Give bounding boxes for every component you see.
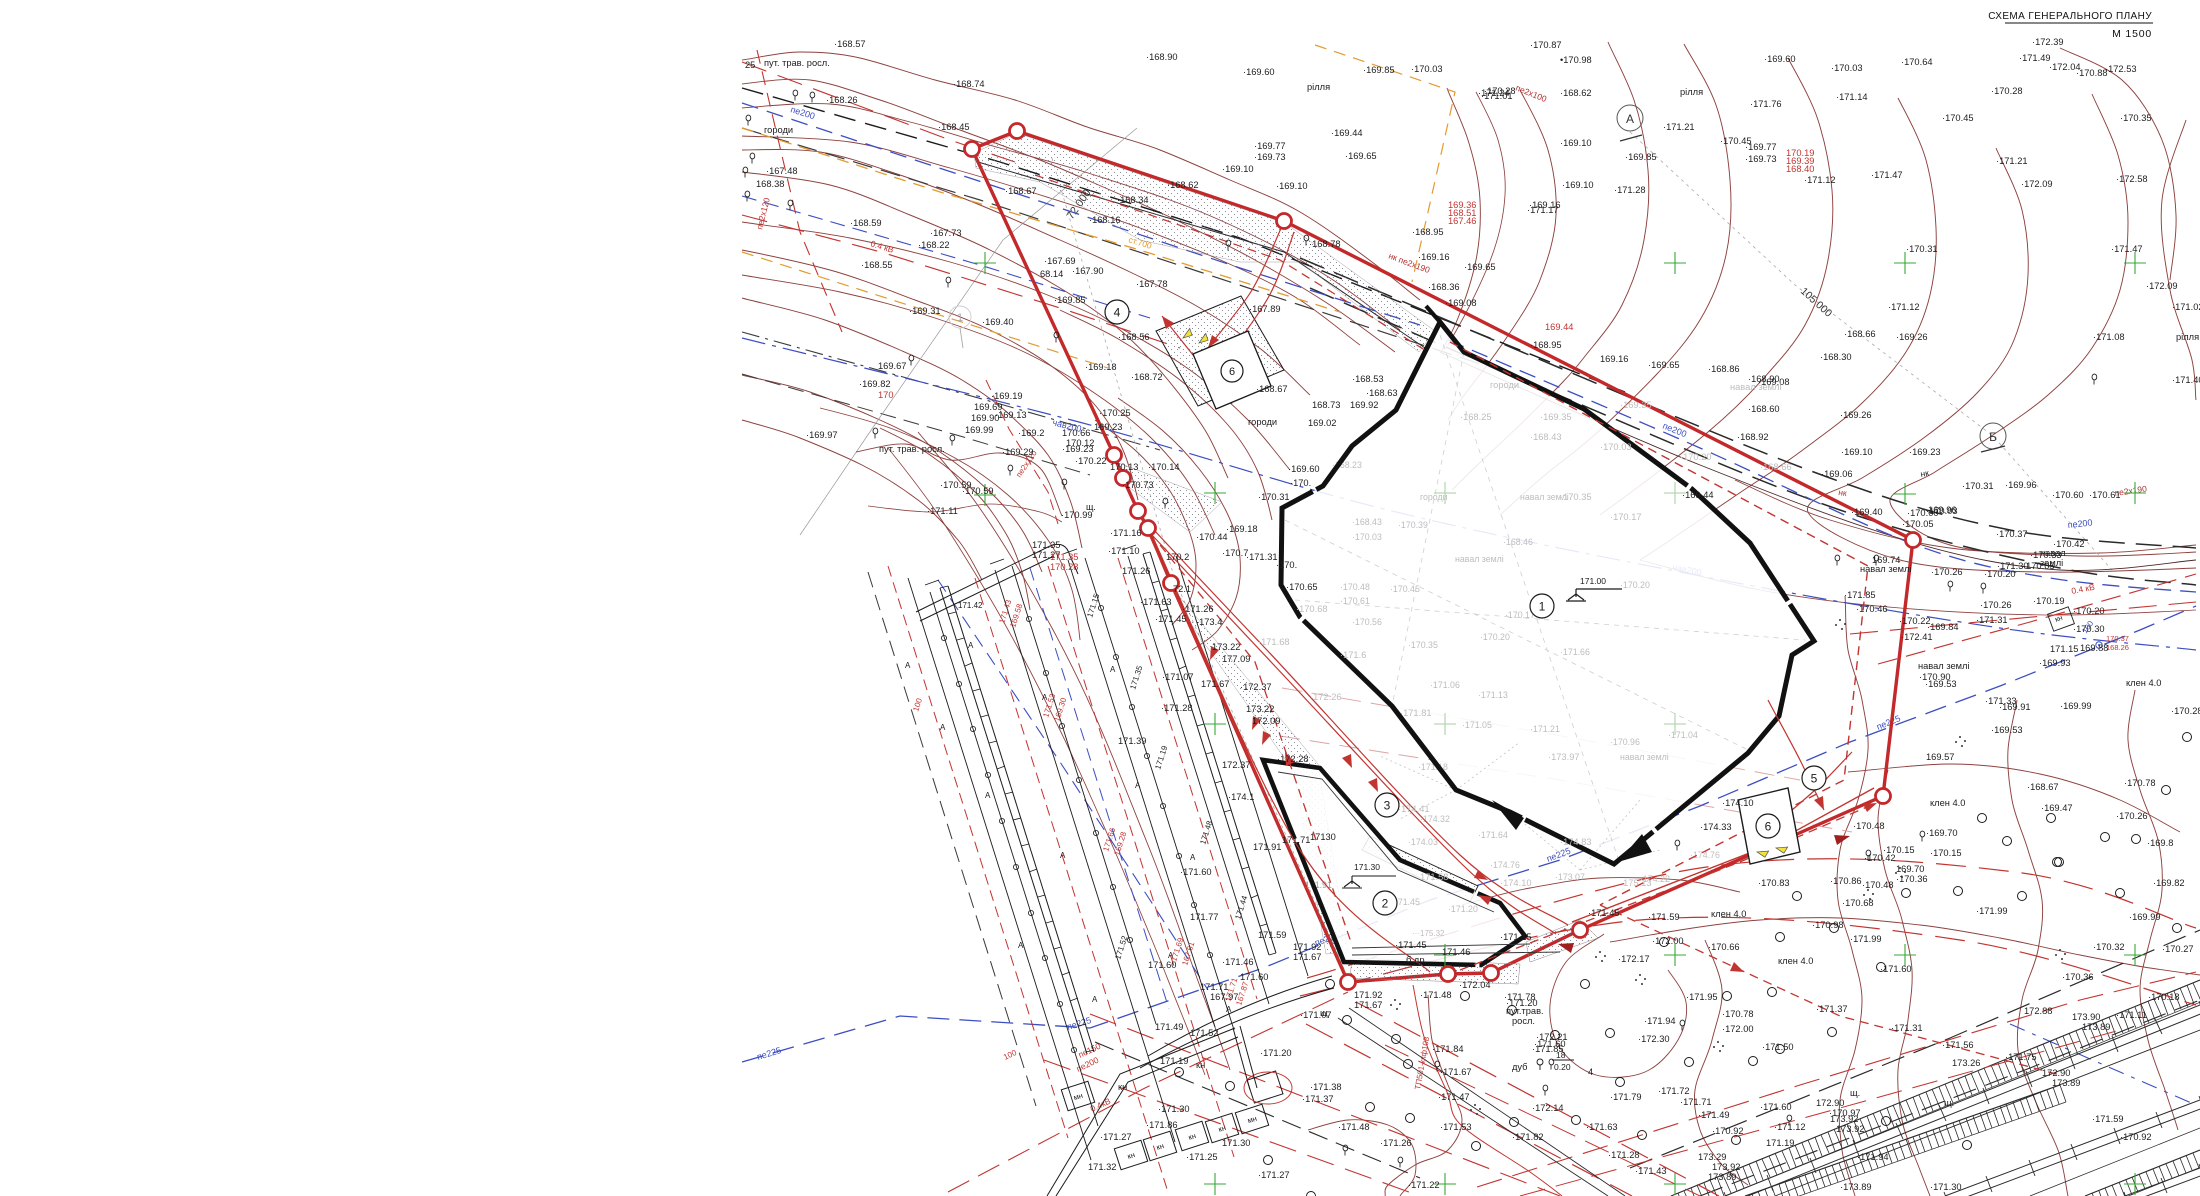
- svg-text:кн: кн: [1196, 1060, 1205, 1070]
- svg-text:·169.10: ·169.10: [1841, 447, 1873, 457]
- svg-text:·171.48: ·171.48: [1420, 990, 1452, 1000]
- svg-text:А: А: [1190, 853, 1196, 862]
- svg-text:СХЕМА ГЕНЕРАЛЬНОГО ПЛАНУ: СХЕМА ГЕНЕРАЛЬНОГО ПЛАНУ: [1988, 11, 2152, 22]
- svg-text:·170.31: ·170.31: [1962, 481, 1994, 491]
- svg-text:·170.83: ·170.83: [1758, 878, 1790, 888]
- svg-text:б.др.: б.др.: [1406, 955, 1427, 965]
- svg-text:клен 4.0: клен 4.0: [2126, 678, 2161, 688]
- svg-text:·168.72: ·168.72: [1131, 372, 1163, 382]
- svg-text:172.90: 172.90: [2042, 1068, 2070, 1078]
- svg-text:4: 4: [1114, 305, 1121, 319]
- svg-text:171.92: 171.92: [1354, 990, 1382, 1000]
- svg-text:·171.76: ·171.76: [1750, 99, 1782, 109]
- svg-text:3: 3: [1384, 798, 1391, 812]
- svg-text:·171.21: ·171.21: [1663, 122, 1695, 132]
- svg-text:·168.34: ·168.34: [1117, 195, 1149, 205]
- svg-text:·169.06: ·169.06: [1821, 469, 1853, 479]
- svg-text:·169.65: ·169.65: [1648, 360, 1680, 370]
- svg-text:171.35: 171.35: [1050, 552, 1078, 562]
- svg-text:·172.41: ·172.41: [1901, 632, 1933, 642]
- svg-text:·170.31: ·170.31: [1906, 244, 1938, 254]
- svg-text:клен 4.0: клен 4.0: [1778, 956, 1813, 966]
- svg-text:173.92: 173.92: [1712, 1162, 1740, 1172]
- svg-text:·171.30: ·171.30: [1930, 1182, 1962, 1192]
- svg-text:·171.12: ·171.12: [1804, 175, 1836, 185]
- svg-text:·169.2: ·169.2: [1018, 428, 1044, 438]
- svg-text:·171.67: ·171.67: [1440, 1067, 1472, 1077]
- svg-text:·171.30: ·171.30: [1158, 1104, 1190, 1114]
- svg-text:·171.63: ·171.63: [1586, 1122, 1618, 1132]
- svg-text:•170.98: •170.98: [1560, 55, 1592, 65]
- svg-text:·170.35: ·170.35: [1560, 492, 1592, 502]
- svg-text:4: 4: [1588, 1067, 1593, 1077]
- svg-text:·170.92: ·170.92: [1712, 1126, 1744, 1136]
- svg-text:171.58: 171.58: [1420, 872, 1448, 882]
- svg-text:·171.28: ·171.28: [1614, 185, 1646, 195]
- svg-text:171.67: 171.67: [1201, 679, 1229, 689]
- svg-text:·168.60: ·168.60: [1748, 404, 1780, 414]
- svg-text:68.14: 68.14: [1040, 269, 1063, 279]
- svg-text:·167.78: ·167.78: [1136, 279, 1168, 289]
- svg-text:·170.96: ·170.96: [1610, 737, 1640, 747]
- svg-text:·171.47: ·171.47: [1438, 1092, 1470, 1102]
- svg-text:навал землі: навал землі: [1860, 564, 1912, 574]
- svg-text:·170.22: ·170.22: [1075, 456, 1107, 466]
- svg-text:0.20: 0.20: [1554, 1062, 1571, 1072]
- svg-text:·168.67: ·168.67: [2027, 782, 2059, 792]
- svg-text:·169.85: ·169.85: [1625, 152, 1657, 162]
- svg-text:·171.14: ·171.14: [1836, 92, 1868, 102]
- svg-text:·171.84: ·171.84: [1432, 1044, 1464, 1054]
- svg-text:·169.65: ·169.65: [1345, 151, 1377, 161]
- svg-text:·171.99: ·171.99: [1850, 934, 1882, 944]
- svg-text:·171.53: ·171.53: [1440, 1122, 1472, 1132]
- svg-text:·170.14: ·170.14: [1148, 462, 1180, 472]
- svg-text:А: А: [1092, 995, 1098, 1004]
- svg-text:городи: городи: [1490, 380, 1519, 390]
- svg-text:·171.22: ·171.22: [1408, 1180, 1440, 1190]
- svg-text:·168.43: ·168.43: [1530, 432, 1562, 442]
- svg-text:·169.10: ·169.10: [1560, 138, 1592, 148]
- svg-text:·170.60: ·170.60: [2052, 490, 2084, 500]
- svg-text:·170.05: ·170.05: [1902, 519, 1934, 529]
- svg-text:·168.25: ·168.25: [1460, 412, 1492, 422]
- svg-text:·170.32: ·170.32: [2093, 942, 2125, 952]
- svg-text:·169.18: ·169.18: [1226, 524, 1258, 534]
- svg-text:·172.09: ·172.09: [2146, 281, 2178, 291]
- svg-text:·168.46: ·168.46: [1503, 537, 1533, 547]
- svg-text:169.44: 169.44: [1545, 322, 1573, 332]
- svg-text:·170.17: ·170.17: [1610, 512, 1642, 522]
- svg-text:·169.19: ·169.19: [991, 391, 1023, 401]
- svg-text:172.09: 172.09: [1252, 716, 1280, 726]
- svg-text:171.60: 171.60: [1240, 972, 1268, 982]
- svg-text:·171.27: ·171.27: [1100, 1132, 1132, 1142]
- svg-text:·168.86: ·168.86: [1708, 364, 1740, 374]
- svg-text:·169.10: ·169.10: [1222, 164, 1254, 174]
- svg-text:·170.66: ·170.66: [1708, 942, 1740, 952]
- svg-text:·169.53: ·169.53: [1991, 725, 2023, 735]
- svg-text:·169.97: ·169.97: [806, 430, 838, 440]
- svg-text:25: 25: [745, 60, 755, 70]
- svg-text:·168.30: ·168.30: [1820, 352, 1852, 362]
- svg-text:·171.49: ·171.49: [2019, 53, 2051, 63]
- svg-text:171.60: 171.60: [1148, 960, 1176, 970]
- svg-text:·171.17: ·171.17: [1527, 205, 1559, 215]
- svg-text:·168.55: ·168.55: [861, 260, 893, 270]
- svg-text:·168.53: ·168.53: [1352, 374, 1384, 384]
- svg-text:·171.31: ·171.31: [1246, 552, 1278, 562]
- svg-text:·170.39: ·170.39: [1398, 520, 1428, 530]
- svg-text:·172.39: ·172.39: [2032, 37, 2064, 47]
- svg-text:·168.62: ·168.62: [1167, 180, 1199, 190]
- svg-text:169.67: 169.67: [878, 361, 906, 371]
- svg-text:клен 4.0: клен 4.0: [1930, 798, 1965, 808]
- svg-text:·170.22: ·170.22: [1899, 616, 1931, 626]
- svg-text:·171.56: ·171.56: [1942, 1040, 1974, 1050]
- svg-text:·169.13: ·169.13: [995, 410, 1027, 420]
- svg-text:·172.58: ·172.58: [2116, 174, 2148, 184]
- svg-text:·170.26: ·170.26: [1980, 600, 2012, 610]
- svg-text:пут. трав. росл.: пут. трав. росл.: [764, 58, 830, 68]
- svg-text:169.99: 169.99: [965, 425, 993, 435]
- svg-text:170.28: 170.28: [1050, 562, 1078, 572]
- svg-text:·170.45: ·170.45: [1720, 136, 1752, 146]
- svg-text:·170.87: ·170.87: [1530, 40, 1562, 50]
- svg-text:·171.94: ·171.94: [1857, 1152, 1889, 1162]
- svg-text:·173.97: ·173.97: [1548, 752, 1580, 762]
- svg-text:·168.56: ·168.56: [1118, 332, 1150, 342]
- svg-text:рілля: рілля: [1307, 82, 1330, 92]
- svg-text:·170.86: ·170.86: [1830, 876, 1862, 886]
- svg-text:·171.71: ·171.71: [1680, 1097, 1712, 1107]
- svg-text:169.23: 169.23: [1094, 422, 1122, 432]
- svg-text:·169.96: ·169.96: [2005, 480, 2037, 490]
- svg-text:·171.43: ·171.43: [1635, 1166, 1667, 1176]
- svg-text:173.89: 173.89: [1708, 1172, 1736, 1182]
- svg-text:·168.74: ·168.74: [953, 79, 985, 89]
- svg-text:·169.73: ·169.73: [1254, 152, 1286, 162]
- svg-text:173.22: 173.22: [1246, 704, 1274, 714]
- svg-text:·170.42: ·170.42: [1864, 853, 1896, 863]
- svg-text:·168.36: ·168.36: [1428, 282, 1460, 292]
- svg-text:·170.19: ·170.19: [2033, 596, 2065, 606]
- svg-text:·172.09: ·172.09: [2021, 179, 2053, 189]
- svg-text:·169.84: ·169.84: [1927, 622, 1959, 632]
- svg-text:·171.21: ·171.21: [1996, 156, 2028, 166]
- svg-text:·170.78: ·170.78: [1722, 1009, 1754, 1019]
- svg-text:·173.4: ·173.4: [1196, 617, 1222, 627]
- svg-text:·170.00: ·170.00: [1907, 508, 1939, 518]
- svg-text:170.37: 170.37: [2106, 634, 2129, 643]
- svg-text:·171.79: ·171.79: [1610, 1092, 1642, 1102]
- svg-text:·171.06: ·171.06: [1430, 680, 1460, 690]
- svg-text:·171.47: ·171.47: [1871, 170, 1903, 180]
- svg-text:167.97: 167.97: [1210, 992, 1238, 1002]
- svg-text:·170.35: ·170.35: [1408, 640, 1438, 650]
- svg-text:·172.28: ·172.28: [1277, 754, 1309, 764]
- svg-text:·170.98: ·170.98: [1812, 920, 1844, 930]
- svg-text:·171.66: ·171.66: [1560, 647, 1590, 657]
- svg-text:171.59: 171.59: [1258, 930, 1286, 940]
- svg-text:·171.49: ·171.49: [1698, 1110, 1730, 1120]
- svg-text:·169.70: ·169.70: [1926, 828, 1958, 838]
- svg-text:171.35: 171.35: [1032, 540, 1060, 550]
- svg-text:1: 1: [1539, 599, 1546, 613]
- svg-text:·171.16: ·171.16: [1110, 528, 1142, 538]
- svg-text:·171.45: ·171.45: [1395, 940, 1427, 950]
- svg-text:·169.65: ·169.65: [1464, 262, 1496, 272]
- svg-text:·171.50: ·171.50: [1762, 1042, 1794, 1052]
- svg-text:·170.36: ·170.36: [1896, 874, 1928, 884]
- svg-text:·171.10: ·171.10: [1108, 546, 1140, 556]
- svg-text:·171.31: ·171.31: [1891, 1023, 1923, 1033]
- svg-text:пут. трав. росл.: пут. трав. росл.: [879, 444, 945, 454]
- svg-text:·169.35: ·169.35: [1540, 412, 1572, 422]
- svg-text:·171.12: ·171.12: [1774, 1122, 1806, 1132]
- svg-text:·170.37: ·170.37: [1996, 529, 2028, 539]
- svg-text:·169.23: ·169.23: [1062, 444, 1094, 454]
- svg-text:173.26: 173.26: [1952, 1058, 1980, 1068]
- svg-text:·169.82: ·169.82: [2153, 878, 2185, 888]
- svg-text:навал: навал: [2040, 548, 2066, 558]
- svg-text:·170.73: ·170.73: [1122, 480, 1154, 490]
- svg-text:2: 2: [1382, 896, 1389, 910]
- svg-text:землі: землі: [2040, 558, 2063, 568]
- svg-text:·169.99: ·169.99: [2129, 912, 2161, 922]
- svg-text:·169.99: ·169.99: [2060, 701, 2092, 711]
- svg-text:·171.24: ·171.24: [1478, 88, 1510, 98]
- svg-text:·169.47: ·169.47: [2041, 803, 2073, 813]
- svg-text:·173.07: ·173.07: [1555, 872, 1585, 882]
- svg-text:·169.26: ·169.26: [1840, 410, 1872, 420]
- svg-text:·170.18: ·170.18: [2148, 992, 2180, 1002]
- svg-text:·170.26: ·170.26: [2116, 811, 2148, 821]
- svg-text:·170.78: ·170.78: [2124, 778, 2156, 788]
- svg-text:171.91: 171.91: [1253, 842, 1281, 852]
- svg-text:·168.45: ·168.45: [938, 122, 970, 132]
- svg-text:·171.99: ·171.99: [1976, 906, 2008, 916]
- svg-text:·172.37: ·172.37: [1240, 682, 1272, 692]
- svg-text:169.70: 169.70: [1896, 864, 1924, 874]
- svg-text:·168.43: ·168.43: [1352, 517, 1382, 527]
- svg-text:·171.20: ·171.20: [1506, 998, 1538, 1008]
- svg-text:·170.20: ·170.20: [1480, 632, 1510, 642]
- svg-text:·171.31: ·171.31: [1976, 615, 2008, 625]
- svg-text:·170.17: ·170.17: [1505, 610, 1535, 620]
- svg-text:дуб: дуб: [1512, 1062, 1528, 1072]
- svg-text:6: 6: [1765, 819, 1772, 833]
- svg-text:·168.22: ·168.22: [918, 240, 950, 250]
- svg-text:·170.68: ·170.68: [1842, 898, 1874, 908]
- svg-text:·171.68: ·171.68: [1258, 637, 1290, 647]
- svg-text:·169.60: ·169.60: [1243, 67, 1275, 77]
- svg-text:·169.18: ·169.18: [1085, 362, 1117, 372]
- svg-text:·169.23: ·169.23: [1909, 447, 1941, 457]
- svg-text:А: А: [1060, 851, 1066, 860]
- svg-text:·171.12: ·171.12: [1888, 302, 1920, 312]
- svg-text:·174.41: ·174.41: [1398, 804, 1430, 814]
- svg-text:·171.72: ·171.72: [1658, 1086, 1690, 1096]
- svg-text:·174.10: ·174.10: [1500, 878, 1532, 888]
- svg-text:·172.00: ·172.00: [1652, 936, 1684, 946]
- svg-text:·168.16: ·168.16: [1089, 215, 1121, 225]
- svg-text:·170.46: ·170.46: [1856, 604, 1888, 614]
- svg-text:·168.90: ·168.90: [1748, 374, 1780, 384]
- svg-text:·169.29: ·169.29: [1002, 447, 1034, 457]
- svg-text:А: А: [1135, 781, 1141, 790]
- svg-text:·171.59: ·171.59: [1648, 912, 1680, 922]
- svg-text:·167.48: ·167.48: [766, 166, 798, 176]
- svg-text:·170.35: ·170.35: [2120, 113, 2152, 123]
- svg-text:·170.20: ·170.20: [1680, 452, 1712, 462]
- svg-text:·170.30: ·170.30: [2073, 624, 2105, 634]
- svg-text:·170.48: ·170.48: [1853, 821, 1885, 831]
- svg-text:щ.: щ.: [1320, 1008, 1330, 1018]
- svg-text:·171.6: ·171.6: [1340, 650, 1366, 660]
- svg-text:·170.48: ·170.48: [1340, 582, 1370, 592]
- svg-text:·168.95: ·168.95: [1530, 340, 1562, 350]
- svg-text:А: А: [1110, 665, 1116, 674]
- svg-text:·168.66: ·168.66: [1760, 462, 1792, 472]
- svg-text:городи: городи: [1248, 417, 1277, 427]
- svg-text:·170.27: ·170.27: [2162, 944, 2194, 954]
- svg-text:171.00: 171.00: [1580, 576, 1606, 586]
- svg-text:·168.63: ·168.63: [1366, 388, 1398, 398]
- svg-text:·170.65: ·170.65: [1286, 582, 1318, 592]
- svg-text:·170.45: ·170.45: [1942, 113, 1974, 123]
- svg-text:171.39: 171.39: [1118, 736, 1146, 746]
- svg-text:·171.95: ·171.95: [1686, 992, 1718, 1002]
- svg-text:·170.28: ·170.28: [1991, 86, 2023, 96]
- svg-text:А: А: [1226, 1005, 1232, 1014]
- svg-text:171.52: 171.52: [1190, 1028, 1218, 1038]
- svg-text:·171.82: ·171.82: [1512, 1132, 1544, 1142]
- svg-text:·169.08: ·169.08: [1445, 298, 1477, 308]
- svg-text:168.26: 168.26: [2106, 643, 2129, 652]
- svg-text:·170.45: ·170.45: [1390, 584, 1420, 594]
- svg-text:·171.48: ·171.48: [1338, 1122, 1370, 1132]
- svg-text:169.92: 169.92: [1350, 400, 1378, 410]
- svg-text:навал землі: навал землі: [1918, 661, 1970, 671]
- svg-text:·170.99: ·170.99: [1061, 510, 1093, 520]
- svg-text:·170.90: ·170.90: [1919, 672, 1951, 682]
- svg-text:М 1500: М 1500: [2112, 28, 2152, 40]
- svg-text:169.57: 169.57: [1926, 752, 1954, 762]
- svg-text:171.19: 171.19: [1766, 1138, 1794, 1148]
- svg-text:кн: кн: [1118, 1082, 1127, 1092]
- svg-text:·168.66: ·168.66: [1844, 329, 1876, 339]
- svg-text:·167.69: ·167.69: [1044, 256, 1076, 266]
- svg-text:росл.: росл.: [1512, 1016, 1535, 1026]
- svg-text:171.77: 171.77: [1190, 912, 1218, 922]
- svg-text:168.40: 168.40: [1786, 164, 1814, 174]
- svg-text:·170.59: ·170.59: [940, 480, 972, 490]
- svg-text:·168.67: ·168.67: [1005, 186, 1037, 196]
- svg-text:171.32: 171.32: [1088, 1162, 1116, 1172]
- svg-text:·168.62: ·168.62: [1560, 88, 1592, 98]
- svg-text:·174.10: ·174.10: [1722, 798, 1754, 808]
- svg-text:·171.26: ·171.26: [1182, 604, 1214, 614]
- svg-text:·171.08: ·171.08: [2093, 332, 2125, 342]
- svg-text:·171.45: ·171.45: [1588, 908, 1620, 918]
- svg-text:5: 5: [1811, 771, 1818, 785]
- svg-text:·171.20: ·171.20: [1448, 904, 1478, 914]
- svg-text:·170.20: ·170.20: [1620, 580, 1650, 590]
- svg-text:·171.60: ·171.60: [1880, 964, 1912, 974]
- svg-text:171.30: 171.30: [1222, 1138, 1250, 1148]
- svg-text:·168.59: ·168.59: [850, 218, 882, 228]
- svg-text:·170.: ·170.: [1290, 478, 1311, 488]
- svg-text:·170.68: ·170.68: [1296, 604, 1328, 614]
- svg-text:·168.67: ·168.67: [1256, 384, 1288, 394]
- svg-text:171.46: 171.46: [1442, 947, 1470, 957]
- svg-text:·169.60: ·169.60: [1764, 54, 1796, 64]
- svg-text:168.38: 168.38: [756, 179, 784, 189]
- svg-text:169.88: 169.88: [2080, 643, 2108, 653]
- svg-text:·172.53: ·172.53: [2105, 64, 2137, 74]
- svg-text:клен 4.0: клен 4.0: [1711, 909, 1746, 919]
- svg-text:·167.90: ·167.90: [1072, 266, 1104, 276]
- svg-text:·170.88: ·170.88: [2076, 68, 2108, 78]
- svg-text:·169.85: ·169.85: [1363, 65, 1395, 75]
- svg-text:·171.85: ·171.85: [1844, 590, 1876, 600]
- svg-text:·171.45: ·171.45: [1155, 614, 1187, 624]
- svg-text:171.30: 171.30: [1354, 862, 1380, 872]
- svg-text:·170.28: ·170.28: [2171, 706, 2200, 716]
- svg-text:·174.83: ·174.83: [1560, 837, 1592, 847]
- svg-text:·169.82: ·169.82: [859, 379, 891, 389]
- svg-text:·170.36: ·170.36: [2062, 972, 2094, 982]
- svg-text:·171.60: ·171.60: [1180, 867, 1212, 877]
- svg-text:Б: Б: [1989, 430, 1997, 444]
- svg-text:А: А: [1626, 112, 1634, 126]
- svg-text:·170.61: ·170.61: [2089, 490, 2121, 500]
- svg-text:·170.26: ·170.26: [1931, 567, 1963, 577]
- svg-text:·171.02: ·171.02: [2172, 302, 2200, 312]
- svg-text:·169.31: ·169.31: [909, 306, 941, 316]
- svg-text:72.1: 72.1: [1173, 584, 1191, 594]
- svg-text:·169.44: ·169.44: [1682, 490, 1714, 500]
- svg-text:·169.35: ·169.35: [1620, 400, 1652, 410]
- svg-text:·172.04: ·172.04: [1459, 980, 1491, 990]
- svg-text:·171.60: ·171.60: [1760, 1102, 1792, 1112]
- svg-text:173.90: 173.90: [2072, 1012, 2100, 1022]
- svg-text:·168.92: ·168.92: [1737, 432, 1769, 442]
- svg-text:·171.46: ·171.46: [1222, 957, 1254, 967]
- svg-text:·170.03: ·170.03: [1600, 442, 1632, 452]
- svg-text:168.73: 168.73: [1312, 400, 1340, 410]
- svg-text:171.67: 171.67: [1354, 1000, 1382, 1010]
- svg-text:·171.20: ·171.20: [1260, 1048, 1292, 1058]
- svg-text:·170.20: ·170.20: [2073, 606, 2105, 616]
- svg-text:·171.37: ·171.37: [1302, 1094, 1334, 1104]
- svg-text:А: А: [1018, 941, 1024, 950]
- svg-text:169.02: 169.02: [1308, 418, 1336, 428]
- svg-text:навал землі: навал землі: [1620, 752, 1669, 762]
- svg-text:·169.44: ·169.44: [1331, 128, 1363, 138]
- svg-text:·171.37: ·171.37: [1816, 1004, 1848, 1014]
- svg-text:·169.73: ·169.73: [1745, 154, 1777, 164]
- svg-text:·172.17: ·172.17: [1618, 954, 1650, 964]
- svg-text:·169.60: ·169.60: [1288, 464, 1320, 474]
- svg-text:171.71: 171.71: [1200, 982, 1228, 992]
- svg-text:·170.7: ·170.7: [1222, 548, 1248, 558]
- svg-text:171.67: 171.67: [1293, 952, 1321, 962]
- svg-text:·170.03: ·170.03: [1411, 64, 1443, 74]
- svg-text:172.90: 172.90: [1816, 1098, 1844, 1108]
- svg-text:167.46: 167.46: [1448, 216, 1476, 226]
